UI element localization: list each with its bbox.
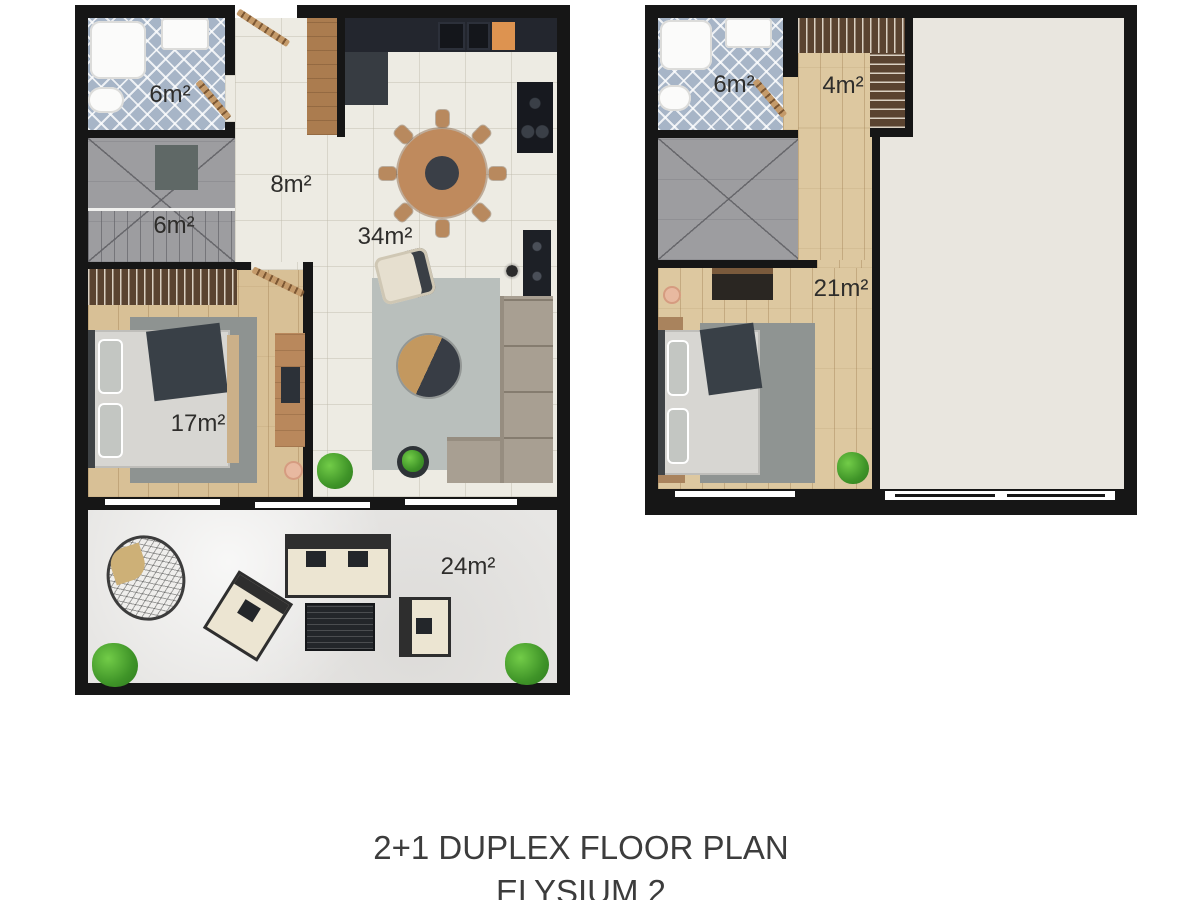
staircase — [658, 138, 800, 260]
table-lamp-icon — [284, 461, 303, 480]
void-area — [880, 137, 1124, 489]
wardrobe — [870, 53, 905, 128]
sofa-chaise — [447, 437, 500, 483]
dining-chair — [436, 220, 449, 237]
bathroom-bottom-wall — [658, 130, 798, 138]
shower-tray-icon — [660, 20, 712, 70]
window — [255, 499, 370, 508]
closet-right-wall — [905, 18, 913, 137]
void-window — [885, 491, 1115, 500]
outdoor-table — [307, 605, 373, 649]
dining-chair — [379, 167, 396, 180]
bed-throw — [700, 323, 763, 396]
bed-bench — [227, 335, 239, 463]
sofa — [500, 296, 553, 483]
desk — [712, 268, 773, 300]
kitchen-sink-icon — [438, 22, 465, 50]
chair-back — [402, 600, 412, 654]
dining-chair — [436, 110, 449, 127]
cooktop-icon — [517, 82, 553, 153]
stair-landing — [155, 145, 198, 190]
corridor-void-wall — [872, 137, 880, 489]
loveseat-pillow — [306, 551, 326, 567]
chair-pillow — [237, 599, 261, 622]
bed — [658, 330, 760, 475]
closet-bottom-wall — [870, 128, 913, 137]
room-label-living-f1: 34m² — [358, 223, 413, 251]
room-label-bathroom-f1: 6m² — [149, 81, 190, 109]
toilet-icon — [658, 85, 691, 111]
floor-lamp-icon — [503, 262, 521, 280]
pillow — [98, 403, 123, 458]
plant-icon — [402, 450, 424, 472]
loveseat-back — [288, 537, 388, 549]
entry-cabinet — [307, 18, 337, 135]
pillow — [667, 340, 689, 396]
outdoor-chair — [402, 600, 448, 654]
sink-icon — [725, 18, 772, 48]
dining-table-center — [425, 156, 459, 190]
coffee-table-icon — [398, 335, 460, 397]
plant-icon — [317, 453, 353, 489]
room-label-bedroom-f1: 17m² — [171, 410, 226, 438]
upper-floor-plan: 6m² 4m² 21m² — [645, 5, 1137, 515]
table-lamp-icon — [663, 286, 681, 304]
kitchen-wall-stub — [337, 18, 345, 137]
wardrobe — [798, 18, 905, 53]
room-label-bedroom-f2: 21m² — [814, 275, 869, 303]
first-floor-plan: 6m² 8m² 6m² 34m² 17m² 24m² — [75, 5, 570, 695]
window — [675, 491, 795, 500]
room-label-stairs-f1: 6m² — [153, 212, 194, 240]
room-label-terrace-f1: 24m² — [441, 553, 496, 581]
bedroom-top-wall — [658, 260, 817, 268]
plan-subtitle: ELYSIUM 2 — [496, 873, 666, 900]
loveseat-pillow — [348, 551, 368, 567]
outdoor-loveseat — [288, 537, 388, 595]
bed-headboard — [658, 330, 665, 475]
chair-pillow — [416, 618, 432, 634]
window — [405, 499, 517, 508]
plant-icon — [92, 643, 138, 687]
window — [105, 499, 220, 508]
bathroom-wall — [225, 18, 235, 75]
floor-plan-canvas: 6m² 8m² 6m² 34m² 17m² 24m² — [0, 0, 1200, 900]
bathroom-door-gap — [783, 77, 798, 130]
bed-throw — [146, 323, 228, 401]
kitchen-island — [345, 52, 388, 105]
bed-headboard — [88, 330, 95, 468]
bathroom-bottom-wall — [88, 130, 235, 138]
cutting-board-icon — [492, 22, 515, 50]
sink-icon — [161, 18, 209, 50]
pillow — [667, 408, 689, 464]
room-label-bathroom-f2: 6m² — [713, 71, 754, 99]
void-area — [913, 18, 1124, 137]
bed — [88, 330, 230, 468]
bedroom-door-gap — [817, 260, 872, 268]
wardrobe — [88, 269, 237, 305]
plant-icon — [505, 643, 549, 685]
bathroom-wall — [783, 18, 795, 77]
dining-chair — [489, 167, 506, 180]
laptop-icon — [281, 367, 300, 403]
window-frame — [895, 494, 995, 497]
kitchen-sink2-icon — [467, 22, 490, 50]
room-label-closet-f2: 4m² — [822, 72, 863, 100]
plant-icon — [837, 452, 869, 484]
pillow — [98, 339, 123, 394]
room-label-hall-f1: 8m² — [270, 171, 311, 199]
tv-cabinet — [523, 230, 551, 296]
toilet-icon — [88, 87, 124, 113]
shower-tray-icon — [90, 21, 146, 79]
plan-title: 2+1 DUPLEX FLOOR PLAN — [373, 829, 788, 867]
window-frame — [1007, 494, 1105, 497]
